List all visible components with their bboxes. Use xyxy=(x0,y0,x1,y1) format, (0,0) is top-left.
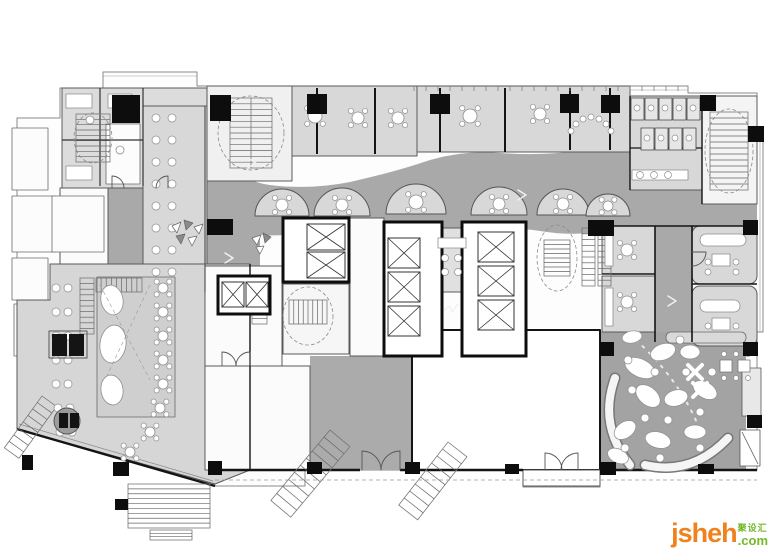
chair xyxy=(167,351,172,356)
furniture xyxy=(705,323,711,329)
columns xyxy=(600,462,616,475)
chair xyxy=(167,327,172,332)
chair xyxy=(553,194,558,199)
furniture xyxy=(603,121,609,127)
chair xyxy=(567,208,572,213)
chair xyxy=(348,122,353,127)
watermark-logo: jsheh 聚设汇 .com xyxy=(671,520,768,547)
furniture xyxy=(64,356,72,364)
columns xyxy=(115,499,128,510)
columns xyxy=(307,462,322,474)
furniture xyxy=(580,116,586,122)
toilets xyxy=(672,135,678,141)
columns xyxy=(430,94,450,114)
stairs xyxy=(426,470,445,485)
furniture xyxy=(152,114,160,122)
chair xyxy=(154,292,159,297)
columns xyxy=(207,219,233,235)
chair xyxy=(167,292,172,297)
furniture xyxy=(455,255,462,262)
rooms xyxy=(350,218,384,356)
chair xyxy=(141,436,146,441)
furniture xyxy=(168,246,176,254)
furniture xyxy=(733,323,739,329)
chair xyxy=(362,108,367,113)
chair xyxy=(402,108,407,113)
furniture xyxy=(605,288,613,326)
chair xyxy=(631,254,636,259)
chair xyxy=(553,208,558,213)
furniture xyxy=(588,114,594,120)
furniture xyxy=(568,128,574,134)
chair xyxy=(421,207,426,212)
furniture xyxy=(608,128,614,134)
table xyxy=(158,283,168,293)
chair xyxy=(134,456,139,461)
furniture xyxy=(52,334,67,356)
chair xyxy=(167,364,172,369)
rooms xyxy=(738,360,750,372)
chair xyxy=(460,121,465,126)
chair xyxy=(406,192,411,197)
furniture xyxy=(86,116,94,124)
toilets xyxy=(644,135,650,141)
columns xyxy=(113,462,129,476)
toilets xyxy=(665,172,672,179)
chair xyxy=(388,108,393,113)
chair xyxy=(167,388,172,393)
stairs xyxy=(415,484,434,499)
chair xyxy=(305,121,310,126)
chair xyxy=(167,303,172,308)
rooms xyxy=(742,368,761,416)
lounge-furniture xyxy=(680,345,700,359)
lounge-furniture xyxy=(624,356,632,364)
furniture xyxy=(59,413,68,428)
chair xyxy=(332,195,337,200)
columns xyxy=(698,464,714,474)
table xyxy=(557,198,569,210)
rooms xyxy=(205,366,310,470)
stairs xyxy=(9,441,24,452)
columns xyxy=(560,94,579,113)
chair xyxy=(421,192,426,197)
furniture xyxy=(66,166,92,180)
chair xyxy=(167,279,172,284)
furniture xyxy=(168,114,176,122)
furniture xyxy=(168,268,176,276)
chair xyxy=(141,423,146,428)
columns xyxy=(307,94,327,114)
stairs xyxy=(128,484,210,528)
furniture xyxy=(442,255,449,262)
chair xyxy=(599,210,604,215)
corridor-gray xyxy=(310,356,412,470)
chair xyxy=(631,306,636,311)
toilets xyxy=(690,105,696,111)
chair xyxy=(154,423,159,428)
columns xyxy=(208,461,222,475)
lounge-furniture xyxy=(746,376,751,381)
floor-plan-drawing xyxy=(0,0,780,551)
lounge-furniture xyxy=(656,454,664,462)
lounge-furniture xyxy=(708,368,716,376)
toilets xyxy=(686,135,692,141)
chair xyxy=(612,210,617,215)
columns xyxy=(505,464,519,474)
chair xyxy=(164,412,169,417)
lounge-furniture xyxy=(734,376,739,381)
furniture xyxy=(573,121,579,127)
chair xyxy=(617,292,622,297)
lounge-furniture xyxy=(651,368,659,376)
furniture xyxy=(52,380,60,388)
furniture xyxy=(700,300,740,312)
furniture xyxy=(116,146,124,154)
furniture xyxy=(66,94,92,108)
chair xyxy=(544,118,549,123)
furniture xyxy=(733,259,739,265)
table xyxy=(125,447,135,457)
chair xyxy=(631,240,636,245)
chair xyxy=(121,456,126,461)
furniture xyxy=(596,116,602,122)
furniture xyxy=(700,234,746,246)
furniture xyxy=(442,269,449,276)
floor-plan-page: jsheh 聚设汇 .com xyxy=(0,0,780,551)
chair xyxy=(348,108,353,113)
chair xyxy=(346,209,351,214)
watermark-cjk-text: 聚设汇 xyxy=(738,524,768,533)
columns xyxy=(22,455,33,470)
chair xyxy=(320,121,325,126)
chair xyxy=(599,197,604,202)
rooms xyxy=(106,124,140,184)
columns xyxy=(588,220,614,236)
toilets xyxy=(658,135,664,141)
chair xyxy=(544,104,549,109)
corridor-gray xyxy=(655,222,692,342)
table xyxy=(534,108,546,120)
columns xyxy=(748,126,764,142)
toilets xyxy=(648,105,654,111)
table xyxy=(158,355,168,365)
chair xyxy=(503,194,508,199)
rooms xyxy=(12,258,48,300)
furniture xyxy=(152,202,160,210)
chair xyxy=(612,197,617,202)
chair xyxy=(631,292,636,297)
table xyxy=(145,427,155,437)
furniture xyxy=(52,308,60,316)
chair xyxy=(489,208,494,213)
chair xyxy=(362,122,367,127)
chair xyxy=(286,195,291,200)
lounge-furniture xyxy=(696,408,704,416)
watermark-brand-text: jsheh xyxy=(671,520,737,547)
stairs xyxy=(150,530,192,540)
furniture xyxy=(64,380,72,388)
rooms xyxy=(720,360,732,372)
rooms xyxy=(52,196,104,252)
columns xyxy=(747,415,762,428)
table xyxy=(158,307,168,317)
rooms xyxy=(283,284,349,354)
chair xyxy=(134,443,139,448)
chair xyxy=(346,195,351,200)
furniture xyxy=(168,136,176,144)
lounge-furniture xyxy=(682,368,690,376)
chair xyxy=(272,195,277,200)
furniture xyxy=(168,202,176,210)
furniture xyxy=(64,308,72,316)
chair xyxy=(154,436,159,441)
chair xyxy=(164,399,169,404)
furniture xyxy=(52,284,60,292)
chair xyxy=(154,327,159,332)
stairs xyxy=(14,435,29,446)
stairs xyxy=(410,491,429,506)
toilets xyxy=(637,172,644,179)
stairs xyxy=(404,498,423,513)
furniture xyxy=(168,158,176,166)
chair xyxy=(460,106,465,111)
table xyxy=(276,199,288,211)
lounge-furniture xyxy=(621,444,629,452)
furniture xyxy=(152,136,160,144)
chair xyxy=(151,399,156,404)
chair xyxy=(567,194,572,199)
chair xyxy=(154,303,159,308)
table xyxy=(352,112,364,124)
columns xyxy=(112,95,140,123)
chair xyxy=(151,412,156,417)
chair xyxy=(332,209,337,214)
chair xyxy=(617,240,622,245)
table xyxy=(336,199,348,211)
furniture xyxy=(712,318,730,330)
table xyxy=(158,379,168,389)
stairs xyxy=(421,477,440,492)
chair xyxy=(503,208,508,213)
furniture xyxy=(70,413,79,428)
chair xyxy=(617,254,622,259)
furniture xyxy=(152,246,160,254)
table xyxy=(409,195,423,209)
lounge-furniture xyxy=(722,352,727,357)
lounge-furniture xyxy=(722,376,727,381)
chair xyxy=(272,209,277,214)
chair xyxy=(617,306,622,311)
chair xyxy=(402,122,407,127)
lounge-furniture xyxy=(684,425,706,439)
columns xyxy=(743,342,758,356)
table xyxy=(463,109,477,123)
toilets xyxy=(676,105,682,111)
furniture xyxy=(168,180,176,188)
furniture xyxy=(733,269,739,275)
chair xyxy=(167,316,172,321)
columns xyxy=(743,220,758,235)
furniture xyxy=(455,269,462,276)
chair xyxy=(167,375,172,380)
rooms xyxy=(12,128,48,190)
chair xyxy=(154,340,159,345)
chair xyxy=(286,209,291,214)
chair xyxy=(406,207,411,212)
lounge-furniture xyxy=(664,416,672,424)
table xyxy=(392,112,404,124)
table xyxy=(155,403,165,413)
columns xyxy=(600,342,614,356)
toilets xyxy=(634,105,640,111)
chair xyxy=(154,316,159,321)
columns xyxy=(210,95,231,121)
furniture xyxy=(712,254,730,266)
chair xyxy=(388,122,393,127)
table xyxy=(603,201,613,211)
chair xyxy=(530,118,535,123)
toilets xyxy=(662,105,668,111)
furniture xyxy=(69,334,84,356)
watermark-tld-text: .com xyxy=(738,534,768,547)
furniture xyxy=(152,158,160,166)
chair xyxy=(154,375,159,380)
lounge-furniture xyxy=(696,444,704,452)
lounge-furniture xyxy=(734,352,739,357)
rooms xyxy=(523,470,600,486)
chair xyxy=(121,443,126,448)
chair xyxy=(154,279,159,284)
chair xyxy=(154,351,159,356)
furniture xyxy=(705,259,711,265)
chair xyxy=(154,388,159,393)
chair xyxy=(475,121,480,126)
chair xyxy=(475,106,480,111)
lounge-furniture xyxy=(628,386,636,394)
chair xyxy=(530,104,535,109)
table xyxy=(158,331,168,341)
columns xyxy=(700,95,716,111)
furniture xyxy=(64,284,72,292)
table xyxy=(621,296,633,308)
furniture xyxy=(705,269,711,275)
furniture xyxy=(152,268,160,276)
table xyxy=(621,244,633,256)
columns xyxy=(405,462,420,474)
lounge-furniture xyxy=(641,414,649,422)
furniture xyxy=(152,224,160,232)
toilets xyxy=(651,172,658,179)
lounge-furniture xyxy=(676,336,684,344)
furniture xyxy=(438,238,466,248)
chair xyxy=(154,364,159,369)
furniture xyxy=(52,356,60,364)
columns xyxy=(601,95,620,113)
chair xyxy=(489,194,494,199)
chair xyxy=(167,340,172,345)
rooms xyxy=(12,196,56,252)
table xyxy=(493,198,505,210)
